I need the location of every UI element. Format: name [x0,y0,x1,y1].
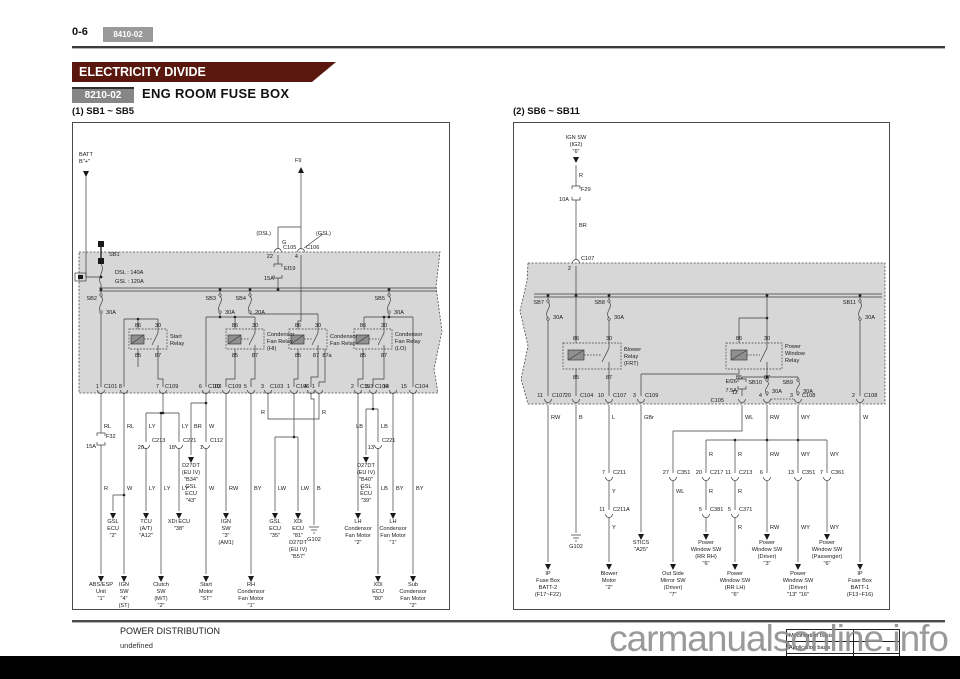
diagram-label: Fuse Box [848,578,872,584]
diagram-label: 11 [725,470,731,476]
diagram-label: (ST) [119,603,130,609]
diagram-label: Ef26 [725,379,737,385]
diagram-label: Window SW [812,547,843,553]
diagram-label: Relay [785,358,800,364]
diagram-label: LW [278,486,287,492]
diagram-label: 7 [820,470,823,476]
diagram-label: 10A [559,197,569,203]
diagram-label: DSL : 140A [115,270,144,276]
diagram-label: D27DT [289,540,307,546]
diagram-label: C101 [104,384,117,390]
diagram-label: 85 [573,375,579,381]
diagram-label: 7 [602,470,605,476]
diagram-label: "80" [373,596,383,602]
diagram-label: "2" [409,603,416,609]
diagram-label: Condensor [267,332,295,338]
diagram1-panel: BATTB"+"F9(DSL)G(GSL)22C1054C106Ef1915AS… [72,122,450,610]
diagram-label: C109 [645,393,658,399]
diagram-label: C217 [710,470,723,476]
diagram-label: 85 [232,353,238,359]
diagram-label: 20A [255,310,265,316]
diagram-label: Power [759,540,775,546]
diagram-label: C381 [710,507,723,513]
diagram-label: ECU [292,526,304,532]
diagram-label: SW [119,589,129,595]
diagram-label: Clutch [153,582,169,588]
diagram-label: 86 [573,336,579,342]
diagram-label: "2" [354,540,361,546]
diagram-label: LB [381,424,388,430]
diagram-label: R [579,173,583,179]
diagram-label: 14 [383,384,389,390]
diagram-label: R [738,525,742,531]
diagram-label: RW [770,452,780,458]
diagram-label: 30 [764,336,770,342]
diagram-label: C107 [581,256,594,262]
diagram-label: SB3 [205,296,216,302]
diagram-label: TCU [140,519,152,525]
diagram-label: "1" [97,596,104,602]
diagram-label: C107 [613,393,626,399]
diagram-label: C108 [864,393,877,399]
diagram-label: C106 [296,384,309,390]
diagram-label: "B40" [359,477,373,483]
diagram-label: 30A [772,389,782,395]
diagram-label: "81" [293,533,303,539]
diagram-label: (RR RH) [695,554,717,560]
diagram-label: (Passenger) [812,554,843,560]
diagram-label: R [709,452,713,458]
diagram-label: 30 [606,336,612,342]
diagram-label: R [104,486,108,492]
diagram-label: Mirror SW [660,578,686,584]
diagram-label: C103 [270,384,283,390]
diagram-label: "2" [109,533,116,539]
diagram-label: "13" "16" [787,592,809,598]
diagram-label: L [361,486,364,492]
diagram-label: 11 [537,393,543,399]
diagram-label: RW [770,525,780,531]
diagram-label: SB2 [86,296,97,302]
diagram-label: Window SW [752,547,783,553]
diagram-label: 6 [199,384,202,390]
diagram-label: Power [785,344,801,350]
diagram-label: 8 [119,384,122,390]
diagram-label: XDi [373,582,382,588]
diagram-label: 86 [295,323,301,329]
diagram-label: 30A [225,310,235,316]
diagram-label: "35" [270,533,280,539]
diagram-label: "7" [669,592,676,598]
diagram-label: 30A [553,315,563,321]
diagram-label: C211 [613,470,626,476]
diagram-label: 30 [155,323,161,329]
diagram-label: (EU IV) [357,470,375,476]
diagram-label: "6" [823,561,830,567]
header-rule [72,46,945,49]
diagram-label: 30A [865,315,875,321]
diagram-label: LB [356,424,363,430]
diagram-label: SB10 [748,380,762,386]
diagram-label: (EU IV) [182,470,200,476]
diagram-label: 2 [351,384,354,390]
footer-title: POWER DISTRIBUTION [120,626,220,636]
diagram-label: C351 [802,470,815,476]
diagram-label: BR [579,223,587,229]
diagram-label: 5 [728,507,731,513]
diagram-label: RL [104,424,111,430]
diagram-label: SB9 [782,380,793,386]
diagram-label: (FRT) [624,361,639,367]
diagram-label: "3" [763,561,770,567]
diagram-label: 1 [96,384,99,390]
diagram-label: 4 [304,384,307,390]
diagram-label: C107 [552,393,565,399]
diagram-label: WY [801,452,810,458]
diagram-label: B [579,415,583,421]
section-code-badge: 8410-02 [103,27,153,42]
diagram-label: (EU IV) [289,547,307,553]
diagram-label: (LO) [395,346,406,352]
diagram-label: L [612,415,615,421]
diagram-label: C105 [283,245,296,251]
diagram-label: WL [745,415,753,421]
diagram-label: Power [698,540,714,546]
diagram-label: (F17~F22) [535,592,561,598]
diagram-label: 85 [360,353,366,359]
diagram-label: W [209,424,215,430]
diagram-label: LB [381,486,388,492]
diagram-label: C109 [228,384,241,390]
diagram-label: Sub [408,582,418,588]
diagram-label: RH [247,582,255,588]
diagram-label: IGN [221,519,231,525]
diagram-label: BR [194,424,202,430]
diagram-label: (HI) [267,346,276,352]
diagram-label: 2 [852,393,855,399]
diagram-label: ECU [269,526,281,532]
diagram-label: 5 [699,507,702,513]
diagram-label: 18 [169,445,175,451]
diagram-label: C104 [580,393,593,399]
diagram-label: 85 [295,353,301,359]
diagram-label: C351 [677,470,690,476]
diagram-label: R [261,410,265,416]
diagram-label: LY [149,424,156,430]
diagram-label: 20 [565,393,571,399]
diagram-label: 27 [663,470,669,476]
diagram-label: F32 [106,434,116,440]
diagram-label: C213 [152,438,165,444]
diagram2-panel: IGN SW(IG2)"6"RF2910ABRC1072SB730ASB830A… [513,122,890,610]
diagram-label: 30A [614,315,624,321]
diagram-label: BATT-1 [851,585,870,591]
diagram-label: WY [830,452,839,458]
diagram-label: Window SW [691,547,722,553]
diagram-label: SB4 [235,296,246,302]
diagram-label: Y [612,525,616,531]
diagram-label: (F13~F16) [847,592,873,598]
diagram-label: "B57" [291,554,305,560]
diagram-label: Relay [624,354,639,360]
diagram-label: "38" [174,526,184,532]
diagram-label: IP [857,571,863,577]
diagram-label: Fan Motor [238,596,264,602]
diagram-label: C106 [306,245,319,251]
diagram-label: C109 [165,384,178,390]
diagram-label: Relay [170,341,185,347]
subsection-code-badge: 8210-02 [72,87,134,103]
diagram-label: W [209,486,215,492]
subsection-title: ENG ROOM FUSE BOX [142,86,289,101]
diagram-label: 86 [135,323,141,329]
diagram-label: Fan Relay [267,339,293,345]
diagram-label: 5 [244,384,247,390]
diagram-label: R [709,489,713,495]
diagram-label: Window SW [720,578,751,584]
diagram-label: Window [785,351,806,357]
diagram-label: 86 [232,323,238,329]
diagram-label: Fan Relay [395,339,421,345]
diagram-label: Out Side [662,571,684,577]
diagram-label: Fan Motor [400,596,426,602]
diagram-label: Start [200,582,212,588]
diagram-label: 87 [155,353,161,359]
diagram-label: "43" [186,498,196,504]
diagram-label: SB8 [594,300,605,306]
diagram-label: 1 [312,384,315,390]
diagram-label: GSL : 120A [115,279,144,285]
diagram-label: "A12" [139,533,153,539]
diagram-label: R [738,452,742,458]
diagram1-svg: BATTB"+"F9(DSL)G(GSL)22C1054C106Ef1915AS… [73,123,449,609]
diagram-label: 13 [368,445,374,451]
diagram-label: BY [416,486,424,492]
diagram-label: WL [676,489,684,495]
diagram-label: Condensor [399,589,427,595]
diagram2-heading: (2) SB6 ~ SB11 [513,106,580,117]
diagram-label: Start [170,334,182,340]
diagram-label: (Driver) [758,554,777,560]
diagram-label: G102 [569,544,583,550]
diagram-label: Ef19 [284,266,296,272]
diagram-label: 15 [401,384,407,390]
diagram-label: ECU [107,526,119,532]
diagram-label: W [127,486,133,492]
diagram-label: R [322,410,326,416]
section-banner: ELECTRICITY DIVIDE [72,62,336,82]
footer-subtitle: undefined [120,641,153,650]
diagram-label: RW [229,486,239,492]
diagram-label: B [317,486,321,492]
diagram-label: WY [801,525,810,531]
diagram-label: ABS/ESP [89,582,113,588]
diagram-label: 30 [252,323,258,329]
diagram-label: GSL [107,519,118,525]
diagram-label: BATT-2 [539,585,558,591]
diagram-label: GBr [644,415,654,421]
diagram-label: Motor [199,589,213,595]
diagram-label: 86 [736,336,742,342]
diagram-label: (AM1) [218,540,233,546]
diagram-label: (RR LH) [725,585,746,591]
diagram-label: RL [127,424,134,430]
diagram-label: 87 [313,353,319,359]
diagram-label: G102 [307,537,321,543]
diagram-label: WY [801,415,810,421]
eng-room-fusebox-region [520,263,885,404]
diagram-label: Condensor [395,332,423,338]
diagram-label: Motor [602,578,616,584]
diagram-label: LY [149,486,156,492]
diagram-label: "4" [120,596,127,602]
diagram-label: 10 [214,384,220,390]
diagram-label: LY [164,486,171,492]
diagram-label: C105 [711,398,724,404]
diagram-label: D27DT [357,463,375,469]
diagram-label: Window SW [783,578,814,584]
diagram-label: "6" [731,592,738,598]
diagram-label: SB7 [533,300,544,306]
diagram-label: C104 [415,384,428,390]
diagram-label: C108 [802,393,815,399]
diagram-label: W [863,415,869,421]
diagram-label: Blower [624,347,641,353]
diagram-label: 15A [86,444,96,450]
diagram2-svg: IGN SW(IG2)"6"RF2910ABRC1072SB730ASB830A… [514,123,889,609]
diagram-label: "A25" [634,547,648,553]
diagram-label: SB1 [109,252,120,258]
diagram-label: Condensor [379,526,407,532]
diagram-label: Power [819,540,835,546]
diagram-label: 20 [138,445,144,451]
diagram-label: BY [396,486,404,492]
diagram-label: WY [830,525,839,531]
diagram-label: 12 [732,390,738,396]
diagram-label: "6" [572,149,579,155]
diagram-label: 7 [156,384,159,390]
diagram-label: "2" [157,603,164,609]
diagram-label: 5 [366,384,369,390]
diagram-label: "1" [247,603,254,609]
diagram-label: SW [156,589,166,595]
diagram-label: 13 [788,470,794,476]
diagram-label: 87 [606,375,612,381]
diagram-label: "39" [361,498,371,504]
diagram-label: XDi ECU [168,519,190,525]
diagram-label: LY [182,486,189,492]
diagram-label: "2" [605,585,612,591]
watermark: carmanualsonline.info [609,618,948,660]
diagram-label: 11 [599,507,605,513]
diagram-label: 4 [759,393,762,399]
diagram-label: (Driver) [789,585,808,591]
diagram-label: (IG2) [570,142,583,148]
diagram-label: Power [727,571,743,577]
diagram-label: Condensor [237,589,265,595]
diagram-label: 10 [598,393,604,399]
diagram-label: C221 [183,438,196,444]
diagram-label: 87 [381,353,387,359]
diagram-label: 87 [764,375,770,381]
diagram-label: 30 [381,323,387,329]
diagram-label: Blower [600,571,617,577]
ground-icon [571,535,581,541]
diagram-label: (A/T) [140,526,153,532]
diagram-label: LW [301,486,310,492]
diagram-label: 22 [267,254,273,260]
diagram-label: IP [545,571,551,577]
manual-page: 0-6 8410-02 ELECTRICITY DIVIDE 8210-02 E… [0,0,960,679]
diagram-label: "1" [389,540,396,546]
diagram-label: 30A [106,310,116,316]
diagram-label: "ST" [200,596,211,602]
diagram-label: B"+" [79,159,90,165]
diagram-label: 4 [295,254,298,260]
diagram-label: (Driver) [664,585,683,591]
diagram-label: RW [551,415,561,421]
ground-icon [309,527,319,533]
diagram-label: GSL [269,519,280,525]
diagram-label: LH [389,519,396,525]
diagram-label: Y [612,489,616,495]
diagram-label: LY [182,424,189,430]
diagram-label: 20 [696,470,702,476]
diagram-label: C211A [613,507,630,513]
diagram-label: C221 [382,438,395,444]
diagram-label: (GSL) [316,231,331,237]
diagram-label: 87 [252,353,258,359]
diagram-label: 15A [264,276,274,282]
diagram-label: IGN [119,582,129,588]
diagram-label: 87a [322,353,332,359]
diagram-label: IGN SW [566,135,587,141]
diagram-label: C361 [831,470,844,476]
diagram-label: 3 [633,393,636,399]
diagram-label: "3" [222,533,229,539]
diagram-label: C213 [739,470,752,476]
diagram-label: SW [221,526,231,532]
diagram-label: XDi [293,519,302,525]
diagram-label: F9 [295,158,302,164]
diagram-label: ECU [372,589,384,595]
diagram-label: (M/T) [154,596,167,602]
diagram-label: Condensor [344,526,372,532]
diagram-label: RW [770,415,780,421]
diagram-label: Condensor [330,334,358,340]
diagram-label: 1 [287,384,290,390]
diagram-label: 85 [135,353,141,359]
diagram-label: 30A [394,310,404,316]
diagram-label: 6 [760,470,763,476]
diagram-label: 2 [568,266,571,272]
diagram-label: "B34" [184,477,198,483]
diagram-label: SB5 [374,296,385,302]
diagram-label: STICS [633,540,650,546]
diagram-label: 1 [200,445,203,451]
diagram-label: 86 [360,323,366,329]
diagram-label: C112 [210,438,223,444]
diagram-label: 3 [790,393,793,399]
diagram-label: 30 [315,323,321,329]
diagram-label: R [738,489,742,495]
diagram1-heading: (1) SB1 ~ SB5 [72,106,134,117]
diagram-label: Fan Motor [345,533,371,539]
diagram-label: LH [354,519,361,525]
diagram-label: (DSL) [256,231,271,237]
diagram-label: Fan Motor [380,533,406,539]
page-number: 0-6 [72,26,88,38]
